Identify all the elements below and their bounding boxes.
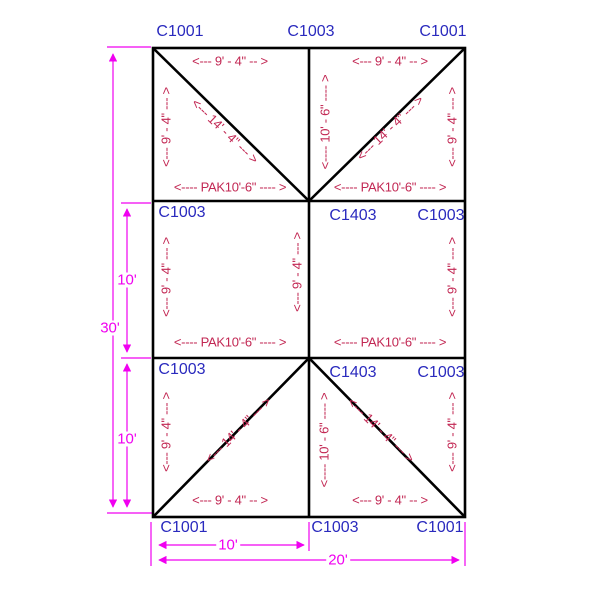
part-label-top-left: C1001 [156, 24, 203, 40]
dim-text-10-6-top: <---- 10' - 6" ---- > [319, 75, 332, 170]
part-label-bottom-right: C1001 [416, 520, 463, 536]
part-label-bottom-center: C1003 [311, 520, 358, 536]
part-label-mid-left: C1003 [158, 205, 205, 221]
dim-text-9-4-top-left-h: <--- 9' - 4" -- > [192, 55, 268, 68]
dim-text-pak-mid-right: <---- PAK10'-6" ---- > [334, 336, 446, 349]
overall-dim-height-mid: 10' [115, 273, 139, 288]
dim-text-9-4-top-right-h: <--- 9' - 4" -- > [352, 55, 428, 68]
dim-text-pak-mid-left: <---- PAK10'-6" ---- > [174, 336, 286, 349]
dim-text-9-4-mid-left-v: <--- 9' - 4" --- > [160, 237, 173, 317]
overall-dim-width-total: 20' [326, 553, 350, 568]
dim-text-9-4-mid-right-v: <--- 9' - 4" --- > [446, 237, 459, 317]
frame-structure [153, 48, 465, 517]
dim-text-9-4-mid-center-v: <--- 9' - 4" --- > [291, 232, 304, 312]
part-label-bottom-row-left: C1003 [158, 362, 205, 378]
part-label-top-right: C1001 [419, 24, 466, 40]
frame-plan-drawing: C1001 C1003 C1001 C1003 C1403 C1003 C100… [0, 0, 600, 600]
dim-text-9-4-top-left-v: <--- 9' - 4" --- > [160, 87, 173, 167]
part-label-mid-right-inner: C1403 [329, 208, 376, 224]
part-label-mid-right-outer: C1003 [417, 208, 464, 224]
dim-text-9-4-bot-right-v: <--- 9' - 4" --- > [446, 392, 459, 472]
overall-dim-height-bottom: 10' [115, 432, 139, 447]
dim-text-10-6-bot: <---- 10' - 6" ---- > [318, 393, 331, 488]
dim-text-pak-top-right: <---- PAK10'-6" ---- > [334, 181, 446, 194]
dim-text-9-4-bot-left-h: <--- 9' - 4" -- > [192, 494, 268, 507]
overall-dim-height-total: 30' [98, 321, 122, 336]
part-label-top-center: C1003 [287, 24, 334, 40]
dim-text-9-4-bot-right-h: <--- 9' - 4" -- > [352, 494, 428, 507]
dim-text-9-4-bot-left-v: <--- 9' - 4" --- > [160, 392, 173, 472]
part-label-bottom-row-inner: C1403 [329, 365, 376, 381]
dim-text-pak-top-left: <---- PAK10'-6" ---- > [174, 181, 286, 194]
part-label-bottom-left: C1001 [160, 520, 207, 536]
dim-text-9-4-top-right-v: <--- 9' - 4" --- > [446, 87, 459, 167]
part-label-bottom-row-outer: C1003 [417, 365, 464, 381]
overall-dim-width-half: 10' [216, 538, 240, 553]
